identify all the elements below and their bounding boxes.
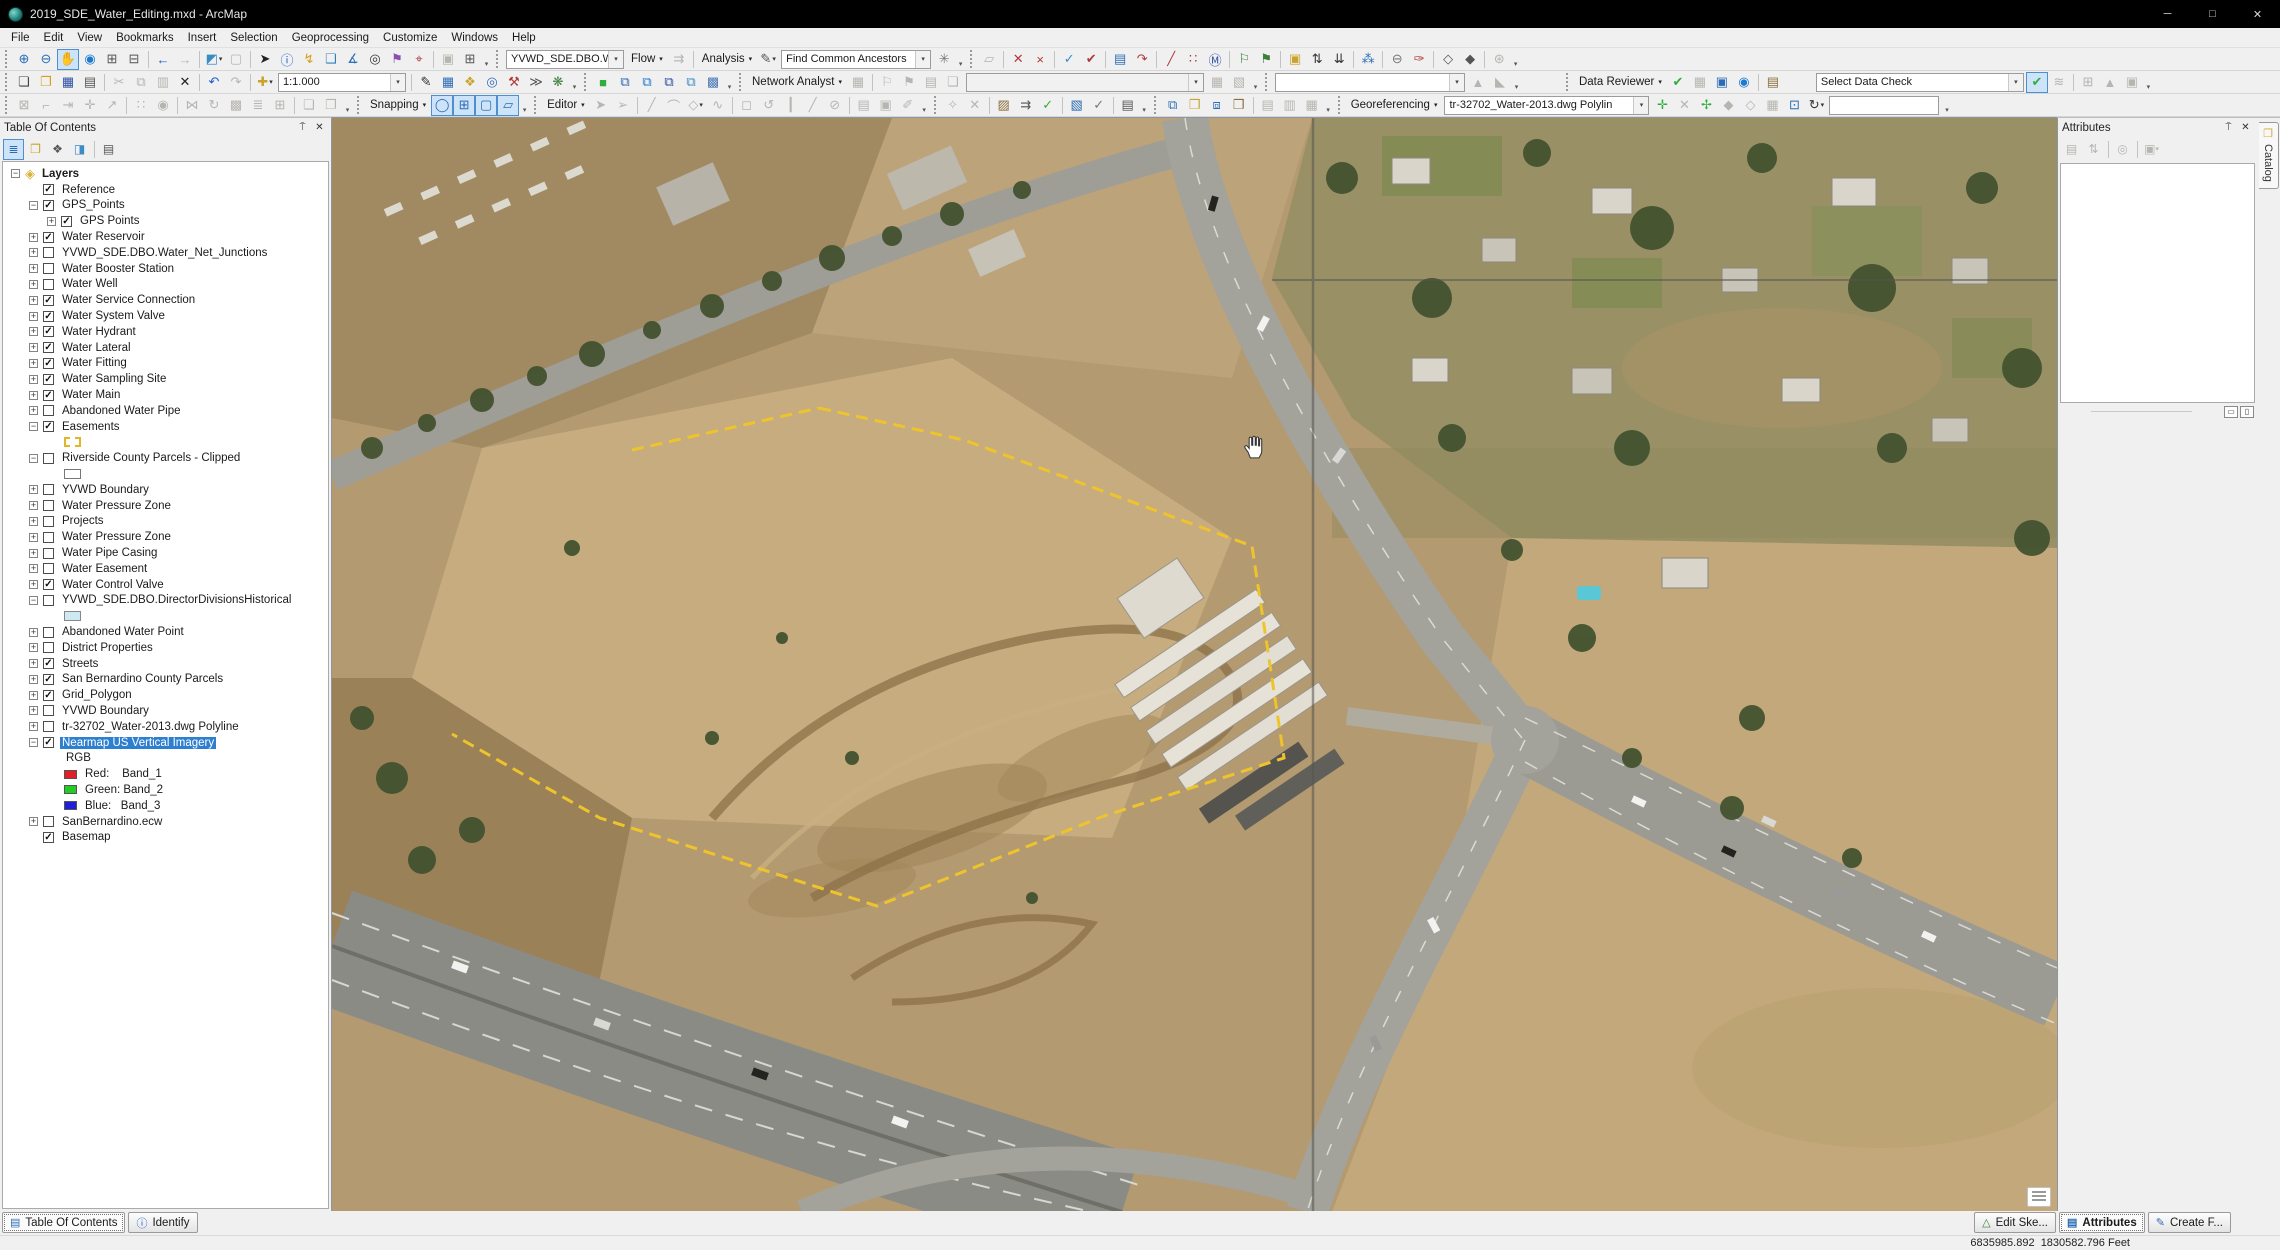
view-link-table[interactable]: ⊡ [1783,95,1805,116]
reviewer-tool-1[interactable]: ✔ [1667,72,1689,93]
print[interactable]: ▤ [79,72,101,93]
chevron-down-icon[interactable]: ▾ [1188,74,1203,91]
edit-tool-19[interactable]: ◇ [1437,49,1459,70]
flow-menu[interactable]: Flow▾ [626,49,668,70]
layer-row[interactable]: +✓Water Lateral [3,340,328,356]
layer-visibility-checkbox[interactable]: ✓ [43,658,54,669]
layer-visibility-checkbox[interactable]: ✓ [43,311,54,322]
expander-icon[interactable]: + [29,517,38,526]
data-frame-tool-1[interactable]: ■ [592,72,614,93]
trace-task-combo[interactable]: Find Common Ancestors▾ [781,50,931,69]
expander-icon[interactable]: + [29,391,38,400]
html-popup[interactable]: ❑ [320,49,342,70]
new-map[interactable]: ❏ [13,72,35,93]
layer-visibility-checkbox[interactable] [43,548,54,559]
toolbar-grip[interactable] [1154,96,1159,114]
open-map[interactable]: ❐ [35,72,57,93]
toolbar-overflow-icon[interactable]: ▾ [724,72,735,93]
expander-icon[interactable]: − [11,169,20,178]
layer-row[interactable]: +tr-32702_Water-2013.dwg Polyline [3,719,328,735]
select-data-check-combo[interactable]: Select Data Check▾ [1816,73,2024,92]
layer-row[interactable]: +✓Water Sampling Site [3,371,328,387]
edit-tool-4[interactable]: ✓ [1058,49,1080,70]
expander-icon[interactable]: + [29,343,38,352]
edit-tool-6[interactable]: ▤ [1109,49,1131,70]
topology-tool-5[interactable]: ✓ [1037,95,1059,116]
data-frame-tool-3[interactable]: ⧉ [636,72,658,93]
reviewer-tool-4[interactable]: ◉ [1733,72,1755,93]
arctoolbox-window[interactable]: ⚒ [503,72,525,93]
verify-data-check[interactable]: ✔ [2026,72,2048,93]
layer-visibility-checkbox[interactable]: ✓ [43,832,54,843]
trace-task-tool[interactable]: ✎▾ [757,49,779,70]
toolbar-grip[interactable] [1265,73,1270,91]
edit-tool-15[interactable]: ⇊ [1328,49,1350,70]
map-overflow-button[interactable] [2027,1187,2051,1207]
label-text-combo[interactable]: ▾ [1275,73,1465,92]
expander-icon[interactable]: + [29,264,38,273]
expander-icon[interactable]: − [29,596,38,605]
layer-visibility-checkbox[interactable]: ✓ [43,326,54,337]
catalog-window[interactable]: ❖ [459,72,481,93]
edit-tool-10[interactable]: Ⓜ [1204,49,1226,70]
search-window[interactable]: ◎ [481,72,503,93]
go-back-extent[interactable]: ← [152,49,174,70]
chevron-down-icon[interactable]: ▾ [390,74,405,91]
topology-tool-8[interactable]: ▤ [1117,95,1139,116]
expander-icon[interactable]: + [29,327,38,336]
attr-layout-toggle[interactable]: ▯ [2240,406,2254,418]
layer-row[interactable]: +✓Grid_Polygon [3,687,328,703]
toolbar-grip[interactable] [739,73,744,91]
undo[interactable]: ↶ [203,72,225,93]
end-snapping[interactable]: ⊞ [453,95,475,116]
full-extent[interactable]: ◉ [79,49,101,70]
expander-icon[interactable]: + [29,485,38,494]
layer-row[interactable]: +SanBernardino.ecw [3,814,328,830]
layer-row[interactable]: +Water Well [3,277,328,293]
georef-layer-combo[interactable]: tr-32702_Water-2013.dwg Polylin▾ [1444,96,1649,115]
layer-row[interactable]: +✓Water Fitting [3,356,328,372]
menu-bookmarks[interactable]: Bookmarks [109,30,181,46]
time-slider[interactable]: ▩ [702,72,724,93]
layer-visibility-checkbox[interactable] [43,279,54,290]
expander-icon[interactable]: − [29,422,38,431]
select-features[interactable]: ◩▾ [203,49,225,70]
layer-visibility-checkbox[interactable]: ✓ [43,232,54,243]
edit-tool-9[interactable]: ∷ [1182,49,1204,70]
layer-label[interactable]: Water Easement [60,563,149,575]
layer-row[interactable]: −◈Layers [3,166,328,182]
layer-label[interactable]: Water Well [60,278,120,290]
layer-row[interactable] [3,466,328,482]
layer-label[interactable]: GPS_Points [60,199,127,211]
tab-attributes[interactable]: ▤Attributes [2059,1212,2145,1233]
close-icon[interactable]: ✕ [2238,120,2253,135]
layer-visibility-checkbox[interactable]: ✓ [43,421,54,432]
toolbar-overflow-icon[interactable]: ▾ [1323,95,1334,116]
zoom-in[interactable]: ⊕ [13,49,35,70]
layer-row[interactable]: +YVWD_SDE.DBO.Water_Net_Junctions [3,245,328,261]
toc-options[interactable]: ▤ [98,139,119,160]
layer-label[interactable]: Water Sampling Site [60,373,168,385]
pin-icon[interactable]: ⍑ [295,120,310,135]
toolbar-overflow-icon[interactable]: ▾ [1139,95,1150,116]
tab-create-features[interactable]: ✎Create F... [2148,1212,2231,1233]
layer-row[interactable]: ✓Basemap [3,829,328,845]
edit-tool-8[interactable]: ╱ [1160,49,1182,70]
layer-row[interactable]: +✓Water Hydrant [3,324,328,340]
list-by-drawing-order[interactable]: ≣ [3,139,24,160]
chevron-down-icon[interactable]: ▾ [915,51,930,68]
layer-label[interactable]: Water Hydrant [60,326,138,338]
toolbar-grip[interactable] [534,96,539,114]
layer-label[interactable]: Red: Band_1 [83,768,164,780]
attr-auto-apply-toggle[interactable]: ▭ [2224,406,2238,418]
layer-row[interactable]: −YVWD_SDE.DBO.DirectorDivisionsHistorica… [3,593,328,609]
expander-icon[interactable]: + [29,501,38,510]
reviewer-tool-5[interactable]: ▤ [1762,72,1784,93]
toolbar-overflow-icon[interactable]: ▾ [519,95,530,116]
layer-row[interactable]: +Water Pressure Zone [3,498,328,514]
edit-tool-14[interactable]: ⇅ [1306,49,1328,70]
layer-visibility-checkbox[interactable] [43,247,54,258]
layer-visibility-checkbox[interactable] [43,642,54,653]
chevron-down-icon[interactable]: ▾ [608,51,623,68]
data-frame-tool-2[interactable]: ⧉ [614,72,636,93]
menu-windows[interactable]: Windows [444,30,505,46]
layer-row[interactable]: −✓Easements [3,419,328,435]
layer-row[interactable] [3,608,328,624]
layer-row[interactable]: +Abandoned Water Pipe [3,403,328,419]
layer-label[interactable]: Blue: Band_3 [83,800,162,812]
layer-row[interactable]: ✓Reference [3,182,328,198]
layer-row[interactable]: +Projects [3,514,328,530]
topology-tool-4[interactable]: ⇉ [1015,95,1037,116]
tab-table-of-contents[interactable]: ▤Table Of Contents [2,1212,125,1233]
expander-icon[interactable]: + [29,675,38,684]
layer-label[interactable]: Grid_Polygon [60,689,134,701]
list-by-selection[interactable]: ◨ [69,139,90,160]
layer-row[interactable]: +✓San Bernardino County Parcels [3,672,328,688]
snapping-menu[interactable]: Snapping▾ [365,95,431,116]
edit-tool-5[interactable]: ✔ [1080,49,1102,70]
chevron-down-icon[interactable]: ▾ [2008,74,2023,91]
layer-label[interactable]: Layers [40,168,81,180]
layer-label[interactable]: Basemap [60,831,113,843]
measure[interactable]: ∡ [342,49,364,70]
expander-icon[interactable]: + [29,722,38,731]
edit-tool-3[interactable]: × [1029,49,1051,70]
version-tool-3[interactable]: ⧈ [1206,95,1228,116]
layer-visibility-checkbox[interactable]: ✓ [43,358,54,369]
layer-label[interactable]: District Properties [60,642,155,654]
toolbar-overflow-icon[interactable]: ▾ [955,49,966,70]
point-snapping[interactable]: ◯ [431,95,453,116]
hyperlink[interactable]: ↯ [298,49,320,70]
expander-icon[interactable]: + [29,691,38,700]
layer-label[interactable]: Water Main [60,389,122,401]
layer-row[interactable]: −✓Nearmap US Vertical Imagery [3,735,328,751]
chevron-down-icon[interactable]: ▾ [1449,74,1464,91]
layer-visibility-checkbox[interactable] [43,484,54,495]
expander-icon[interactable]: + [29,233,38,242]
layer-visibility-checkbox[interactable] [43,453,54,464]
menu-customize[interactable]: Customize [376,30,444,46]
georeferencing-menu[interactable]: Georeferencing▾ [1346,95,1443,116]
reviewer-tool-3[interactable]: ▣ [1711,72,1733,93]
layer-row[interactable]: +YVWD Boundary [3,482,328,498]
expander-icon[interactable]: + [29,406,38,415]
layer-label[interactable]: Abandoned Water Point [60,626,186,638]
expander-icon[interactable]: + [29,296,38,305]
expander-icon[interactable]: − [29,201,38,210]
menu-geoprocessing[interactable]: Geoprocessing [285,30,376,46]
layer-row[interactable]: +✓GPS Points [3,213,328,229]
version-tool-4[interactable]: ❒ [1228,95,1250,116]
chevron-down-icon[interactable]: ▾ [1633,97,1648,114]
toolbar-grip[interactable] [1566,73,1571,91]
maximize-button[interactable]: □ [2190,0,2235,28]
layer-row[interactable]: Blue: Band_3 [3,798,328,814]
find[interactable]: ◎ [364,49,386,70]
map-scale-combo[interactable]: 1:1.000▾ [278,73,406,92]
layer-visibility-checkbox[interactable] [43,563,54,574]
layer-visibility-checkbox[interactable]: ✓ [43,374,54,385]
toolbar-overflow-icon[interactable]: ▾ [1510,49,1521,70]
layer-row[interactable]: +✓Streets [3,656,328,672]
layer-row[interactable]: −✓GPS_Points [3,198,328,214]
tab-identify[interactable]: ⓘIdentify [128,1212,197,1233]
data-reviewer-menu[interactable]: Data Reviewer▾ [1574,72,1667,93]
menu-file[interactable]: File [4,30,37,46]
topology-tool-7[interactable]: ✓ [1088,95,1110,116]
toolbar-overflow-icon[interactable]: ▾ [342,95,353,116]
expander-icon[interactable]: + [29,248,38,257]
menu-view[interactable]: View [70,30,109,46]
expander-icon[interactable]: + [29,628,38,637]
list-by-visibility[interactable]: ❖ [47,139,68,160]
version-tool-2[interactable]: ❒ [1184,95,1206,116]
layer-visibility-checkbox[interactable] [43,500,54,511]
toolbar-overflow-icon[interactable]: ▾ [1941,95,1952,116]
attributes-splitter[interactable]: ▭▯ [2058,405,2257,419]
layer-visibility-checkbox[interactable]: ✓ [43,579,54,590]
edit-tool-18[interactable]: ✑ [1408,49,1430,70]
table-options[interactable]: ▦ [437,72,459,93]
add-control-points-2[interactable]: ✢ [1695,95,1717,116]
layer-visibility-checkbox[interactable] [43,532,54,543]
zoom-out[interactable]: ⊖ [35,49,57,70]
toolbar-overflow-icon[interactable]: ▾ [1511,72,1522,93]
layer-row[interactable]: RGB [3,750,328,766]
catalog-tab[interactable]: ❒ Catalog [2259,122,2279,189]
layer-visibility-checkbox[interactable]: ✓ [43,390,54,401]
toolbar-grip[interactable] [970,50,975,68]
layer-row[interactable]: +Water Booster Station [3,261,328,277]
layer-label[interactable]: Streets [60,658,100,670]
layer-row[interactable]: +Water Easement [3,561,328,577]
layer-visibility-checkbox[interactable] [43,405,54,416]
expander-icon[interactable]: + [29,359,38,368]
edge-snapping[interactable]: ▱ [497,95,519,116]
layer-label[interactable]: Easements [60,421,122,433]
tab-edit-sketch-properties[interactable]: △Edit Ske... [1974,1212,2056,1233]
edit-tool-16[interactable]: ⁂ [1357,49,1379,70]
select-elements[interactable]: ➤ [254,49,276,70]
layer-visibility-checkbox[interactable]: ✓ [43,342,54,353]
expander-icon[interactable]: + [29,817,38,826]
edit-tool-20[interactable]: ◆ [1459,49,1481,70]
layer-row[interactable]: −Riverside County Parcels - Clipped [3,450,328,466]
layer-row[interactable]: +✓Water Control Valve [3,577,328,593]
layer-visibility-checkbox[interactable]: ✓ [43,184,54,195]
layer-visibility-checkbox[interactable] [43,705,54,716]
layer-visibility-checkbox[interactable]: ✓ [61,216,72,227]
expander-icon[interactable]: + [29,533,38,542]
python-window[interactable]: ≫ [525,72,547,93]
toolbar-overflow-icon[interactable]: ▾ [919,95,930,116]
rotate-georef[interactable]: ↻▾ [1805,95,1827,116]
layer-label[interactable]: GPS Points [78,215,141,227]
go-to-xy[interactable]: ⌖ [408,49,430,70]
layer-label[interactable]: Green: Band_2 [83,784,165,796]
fixed-zoom-in[interactable]: ⊞ [101,49,123,70]
menu-edit[interactable]: Edit [37,30,71,46]
magnifier-window[interactable]: ⊞ [459,49,481,70]
layer-row[interactable]: +✓Water Main [3,387,328,403]
edit-tool-11[interactable]: ⚐ [1233,49,1255,70]
toolbar-grip[interactable] [5,73,10,91]
layer-label[interactable]: Water Pressure Zone [60,500,173,512]
expander-icon[interactable]: + [29,706,38,715]
expander-icon[interactable]: + [29,375,38,384]
layer-row[interactable]: +Water Pipe Casing [3,545,328,561]
close-icon[interactable]: ✕ [312,120,327,135]
toolbar-grip[interactable] [584,73,589,91]
layer-label[interactable]: Projects [60,515,106,527]
layer-label[interactable]: Water Lateral [60,342,133,354]
layer-row[interactable]: +Abandoned Water Point [3,624,328,640]
expander-icon[interactable]: + [29,659,38,668]
fixed-zoom-out[interactable]: ⊟ [123,49,145,70]
layer-visibility-checkbox[interactable] [43,516,54,527]
data-frame-tool-4[interactable]: ⧉ [658,72,680,93]
layer-label[interactable]: Water Booster Station [60,263,176,275]
expander-icon[interactable]: + [29,643,38,652]
modelbuilder-window[interactable]: ❋ [547,72,569,93]
topology-tool-6[interactable]: ▧ [1066,95,1088,116]
pin-icon[interactable]: ⍑ [2221,120,2236,135]
minimize-button[interactable]: ─ [2145,0,2190,28]
delete[interactable]: ✕ [174,72,196,93]
edit-tool-7[interactable]: ↷ [1131,49,1153,70]
analysis-menu[interactable]: Analysis▾ [697,49,757,70]
layer-visibility-checkbox[interactable] [43,627,54,638]
layer-label[interactable]: Water Fitting [60,357,129,369]
layer-label[interactable]: Water System Valve [60,310,167,322]
layer-row[interactable]: +District Properties [3,640,328,656]
layer-label[interactable]: Abandoned Water Pipe [60,405,183,417]
menu-selection[interactable]: Selection [223,30,284,46]
layer-visibility-checkbox[interactable]: ✓ [43,674,54,685]
menu-help[interactable]: Help [505,30,543,46]
toolbar-overflow-icon[interactable]: ▾ [1250,72,1261,93]
layer-label[interactable]: YVWD_SDE.DBO.Water_Net_Junctions [60,247,269,259]
georef-angle-input[interactable] [1829,96,1939,115]
toolbar-grip[interactable] [934,96,939,114]
layer-row[interactable]: Green: Band_2 [3,782,328,798]
expander-icon[interactable]: + [29,280,38,289]
expander-icon[interactable]: + [29,564,38,573]
layer-visibility-checkbox[interactable] [43,263,54,274]
add-control-points[interactable]: ✛ [1651,95,1673,116]
layer-label[interactable]: tr-32702_Water-2013.dwg Polyline [60,721,241,733]
layer-label[interactable]: YVWD_SDE.DBO.DirectorDivisionsHistorical [60,594,293,606]
identify[interactable]: ⓘ [276,49,298,70]
layer-visibility-checkbox[interactable]: ✓ [43,295,54,306]
layer-row[interactable]: +Water Pressure Zone [3,529,328,545]
data-frame-tool-5[interactable]: ⧉ [680,72,702,93]
layer-label[interactable]: Water Service Connection [60,294,197,306]
layer-visibility-checkbox[interactable]: ✓ [43,737,54,748]
layer-label[interactable]: SanBernardino.ecw [60,816,164,828]
save-map[interactable]: ▦ [57,72,79,93]
layer-row[interactable]: +✓Water System Valve [3,308,328,324]
layer-row[interactable]: +✓Water Reservoir [3,229,328,245]
version-tool-1[interactable]: ⧉ [1162,95,1184,116]
editor-menu[interactable]: Editor▾ [542,95,590,116]
layer-label[interactable]: YVWD Boundary [60,484,151,496]
layer-label[interactable]: Water Control Valve [60,579,166,591]
pan-tool[interactable]: ✋ [57,49,79,70]
layer-label[interactable]: YVWD Boundary [60,705,151,717]
layer-visibility-checkbox[interactable]: ✓ [43,690,54,701]
edit-tool-12[interactable]: ⚑ [1255,49,1277,70]
layer-label[interactable]: RGB [64,752,93,764]
expander-icon[interactable]: + [29,549,38,558]
map-view[interactable] [332,117,2057,1211]
toolbar-overflow-icon[interactable]: ▾ [569,72,580,93]
expander-icon[interactable]: + [29,580,38,589]
add-data[interactable]: ✚▾ [254,72,276,93]
topology-tool-3[interactable]: ▨ [993,95,1015,116]
layer-label[interactable]: Water Pressure Zone [60,531,173,543]
toolbar-grip[interactable] [1338,96,1343,114]
toolbar-overflow-icon[interactable]: ▾ [2143,72,2154,93]
expander-icon[interactable]: + [29,312,38,321]
layer-label[interactable]: San Bernardino County Parcels [60,673,225,685]
find-route[interactable]: ⚑ [386,49,408,70]
layer-row[interactable]: +✓Water Service Connection [3,292,328,308]
layer-label[interactable]: Water Reservoir [60,231,147,243]
menu-insert[interactable]: Insert [181,30,224,46]
solve-trace[interactable]: ✳ [933,49,955,70]
toolbar-grip[interactable] [357,96,362,114]
edit-tool-17[interactable]: ⊖ [1386,49,1408,70]
layer-visibility-checkbox[interactable]: ✓ [43,200,54,211]
layer-label[interactable]: Riverside County Parcels - Clipped [60,452,242,464]
layer-visibility-checkbox[interactable] [43,721,54,732]
vertex-snapping[interactable]: ▢ [475,95,497,116]
toolbar-grip[interactable] [5,50,10,68]
layer-label[interactable]: Water Pipe Casing [60,547,159,559]
utility-network-combo[interactable]: YVWD_SDE.DBO.Water_Net (▾ [506,50,624,69]
layer-row[interactable]: Red: Band_1 [3,766,328,782]
edit-tool-13[interactable]: ▣ [1284,49,1306,70]
toolbar-overflow-icon[interactable]: ▾ [481,49,492,70]
list-by-source[interactable]: ❒ [25,139,46,160]
